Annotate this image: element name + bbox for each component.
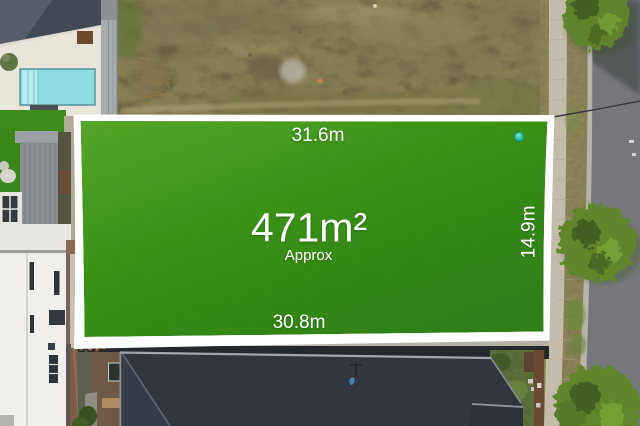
svg-text:14.9m: 14.9m (519, 206, 540, 259)
svg-text:30.8m: 30.8m (273, 312, 326, 333)
svg-text:Approx: Approx (285, 247, 333, 264)
svg-text:31.6m: 31.6m (292, 125, 345, 146)
svg-text:471m²: 471m² (251, 205, 367, 251)
